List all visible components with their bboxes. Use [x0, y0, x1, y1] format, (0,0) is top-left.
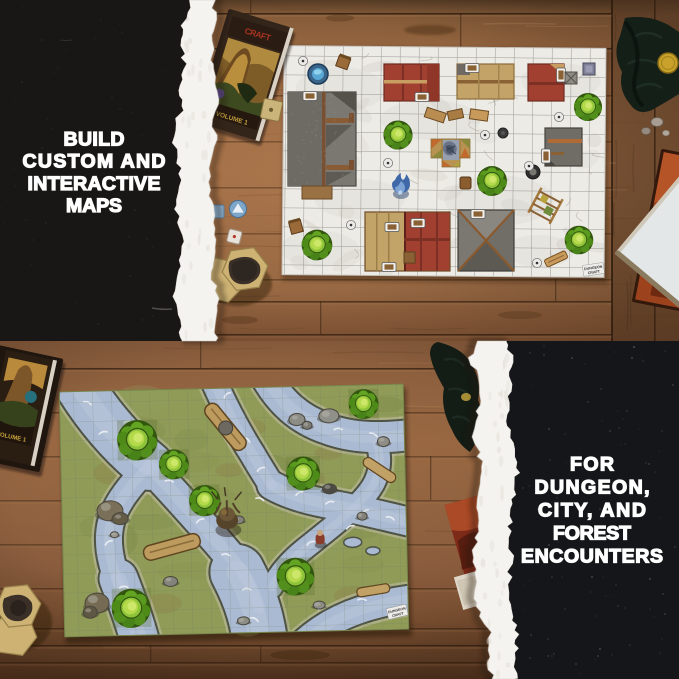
svg-text:FOREST: FOREST — [553, 522, 631, 544]
svg-text:DUNGEON,: DUNGEON, — [535, 476, 650, 498]
svg-text:CITY, AND: CITY, AND — [538, 499, 646, 521]
svg-text:INTERACTIVE: INTERACTIVE — [28, 173, 161, 195]
svg-text:MAPS: MAPS — [66, 195, 122, 217]
svg-text:CUSTOM AND: CUSTOM AND — [23, 151, 166, 173]
svg-text:BUILD: BUILD — [64, 129, 125, 151]
svg-text:FOR: FOR — [570, 453, 614, 475]
svg-text:ENCOUNTERS: ENCOUNTERS — [521, 545, 663, 567]
